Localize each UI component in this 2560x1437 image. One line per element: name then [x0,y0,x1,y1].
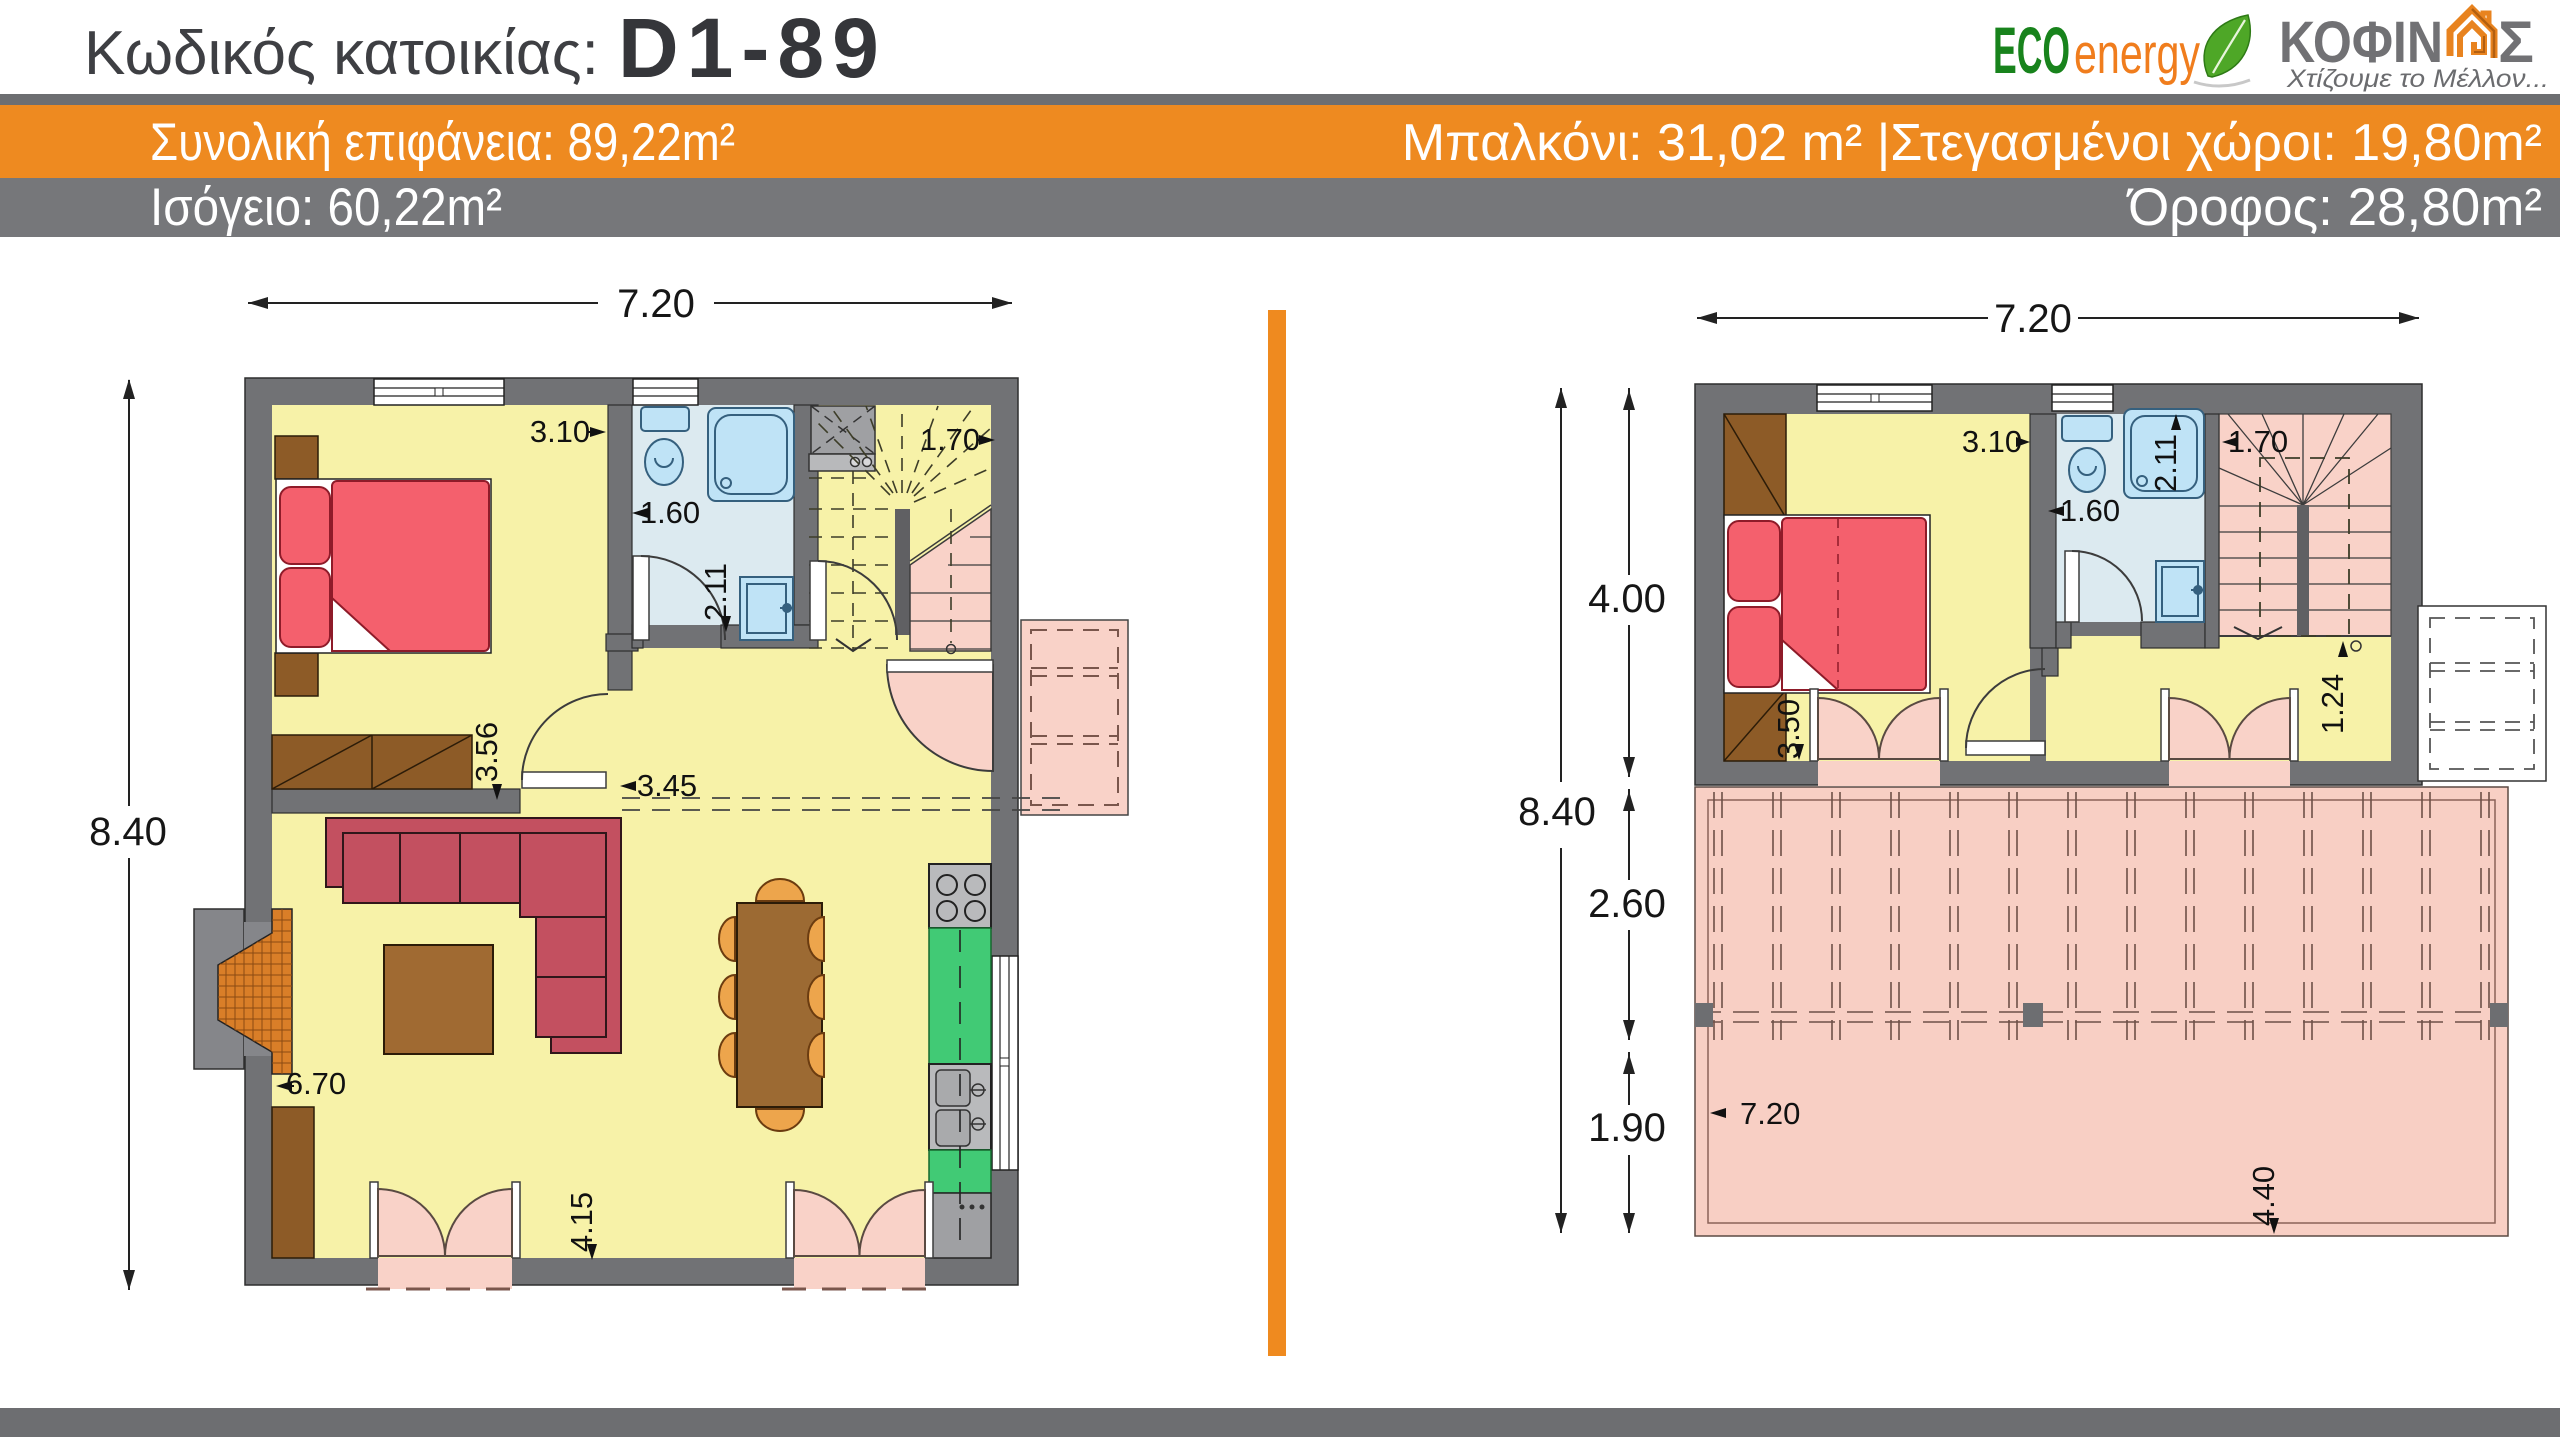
svg-text:D1-89: D1-89 [618,1,887,95]
svg-text:Κωδικός κατοικίας:: Κωδικός κατοικίας: [84,19,599,88]
svg-text:Χτίζουμε το Μέλλον...: Χτίζουμε το Μέλλον... [2286,65,2549,93]
svg-text:7.20: 7.20 [617,282,695,326]
svg-text:2.11: 2.11 [698,563,733,621]
svg-text:3.56: 3.56 [469,722,504,782]
svg-text:3.10: 3.10 [1962,424,2022,459]
svg-text:2.60: 2.60 [1588,882,1666,926]
svg-text:1.60: 1.60 [640,495,700,530]
svg-text:Συνολική επιφάνεια: 89,22m²: Συνολική επιφάνεια: 89,22m² [150,113,735,172]
svg-text:1.90: 1.90 [1588,1106,1666,1150]
svg-text:7.20: 7.20 [1740,1096,1800,1131]
svg-text:8.40: 8.40 [89,810,167,854]
svg-text:Ισόγειο: 60,22m²: Ισόγειο: 60,22m² [150,178,502,237]
svg-text:6.70: 6.70 [286,1066,346,1101]
svg-text:7.20: 7.20 [1994,297,2072,341]
svg-text:4.15: 4.15 [564,1192,599,1252]
svg-text:3.45: 3.45 [637,768,697,803]
svg-text:Όροφος: 28,80m²: Όροφος: 28,80m² [2126,178,2542,237]
svg-text:4.00: 4.00 [1588,577,1666,621]
svg-text:3.10: 3.10 [530,414,590,449]
svg-text:2.11: 2.11 [2148,434,2183,492]
svg-text:energy: energy [2074,22,2200,86]
svg-text:1.60: 1.60 [2060,493,2120,528]
svg-text:ECO: ECO [1993,13,2070,87]
svg-text:Μπαλκόνι: 31,02 m² |Στεγασμένο: Μπαλκόνι: 31,02 m² |Στεγασμένοι χώροι: 1… [1402,114,2542,172]
svg-text:8.40: 8.40 [1518,790,1596,834]
svg-text:1.24: 1.24 [2315,674,2350,734]
svg-text:1.70: 1.70 [920,422,980,457]
svg-text:4.40: 4.40 [2246,1166,2281,1226]
